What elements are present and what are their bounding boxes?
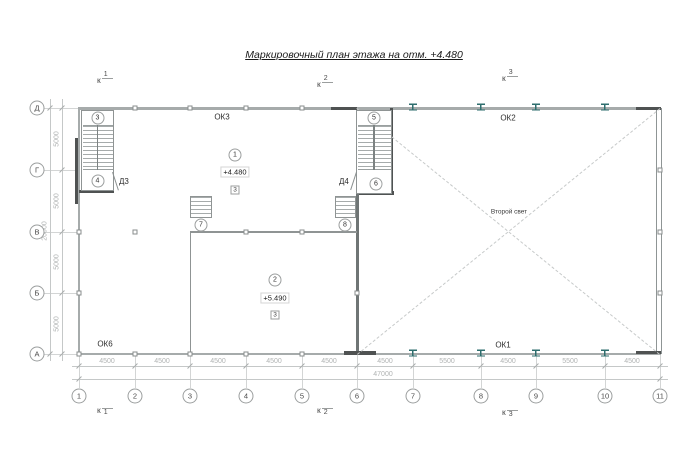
grid-leader-col [357,354,358,388]
section-marker-letter: к [317,405,321,415]
column-marker [244,352,249,357]
dim-label-4500: 4500 [624,358,640,365]
column-marker [657,168,662,173]
opening-label-ok1: ОК1 [495,341,510,350]
dim-label-5500: 5500 [439,358,455,365]
door-label-d3: Д3 [119,177,129,186]
zone-type-box: 3 [271,311,280,320]
dim-label-4500: 4500 [266,358,282,365]
grid-leader-col [79,354,80,388]
section-marker-k1-top: к 1 [97,72,113,85]
wall-room2-top [190,231,357,233]
axis-bubble-col: 7 [406,389,421,404]
position-bubble: 4 [91,175,104,188]
grid-leader-col [660,354,661,388]
column-marker [300,106,305,111]
axis-bubble-col: 6 [350,389,365,404]
grid-leader-col [135,354,136,388]
grid-leader-col [605,354,606,388]
zone-number-bubble: 1 [229,149,242,162]
steel-column-icon [477,350,485,357]
axis-bubble-col: 9 [529,389,544,404]
column-marker [355,291,360,296]
opening-label-ok3: ОК3 [214,113,229,122]
stair-divider [97,125,99,170]
section-marker-letter: к [502,407,506,417]
section-marker-k1-bottom: к 1 [97,402,113,415]
zone-number-bubble: 2 [269,274,282,287]
grid-leader-col [190,354,191,388]
steel-column-icon [409,350,417,357]
section-marker-k3-top: к 3 [502,70,518,83]
stair-divider [373,125,375,170]
stair-small-7 [190,196,212,218]
dim-label-4500: 4500 [321,358,337,365]
axis-bubble-col: 4 [239,389,254,404]
steel-column-icon [532,350,540,357]
section-marker-number: 3 [507,69,518,77]
dimension-line-bottom-total [72,379,668,380]
dim-label-4500: 4500 [154,358,170,365]
grid-leader-col [536,354,537,388]
column-marker [657,230,662,235]
zone-type-box: 3 [231,185,240,194]
grid-leader-col [246,354,247,388]
section-marker-k2-top: к 2 [317,76,333,89]
column-marker [657,291,662,296]
section-marker-letter: к [317,79,321,89]
section-marker-number: 2 [322,75,333,83]
wall-room2-left [190,232,192,354]
void-label: Второй свет [491,209,527,216]
floor-plan-drawing: Маркировочный план этажа на отм. +4.480 … [0,0,700,474]
opening-label-ok2: ОК2 [500,114,515,123]
axis-bubble-col: 10 [598,389,613,404]
column-marker [188,106,193,111]
section-marker-letter: к [97,405,101,415]
axis-bubble-col: 5 [295,389,310,404]
elevation-mark: +5.490 [260,293,289,304]
drawing-title: Маркировочный план этажа на отм. +4.480 [245,49,463,61]
wall-segment-dark [331,107,357,111]
grid-leader-col [481,354,482,388]
section-marker-letter: к [97,75,101,85]
section-marker-k2-bottom: к 2 [317,402,333,415]
wall-interior-mid [356,194,359,354]
column-marker [300,230,305,235]
section-marker-number: 2 [322,408,333,416]
dim-label-4500: 4500 [99,358,115,365]
dim-label-4500: 4500 [210,358,226,365]
column-marker [77,291,82,296]
axis-bubble-col: 1 [72,389,87,404]
axis-bubble-col: 3 [183,389,198,404]
dim-label-5000: 5000 [54,131,61,147]
position-bubble: 3 [91,111,104,124]
dim-label-5000: 5000 [54,316,61,332]
dimension-line-left-total [50,99,51,361]
axis-bubble-row: В [30,225,45,240]
axis-bubble-row: Б [30,286,45,301]
column-marker [244,230,249,235]
section-marker-number: 1 [102,71,113,79]
dim-label-4500: 4500 [377,358,393,365]
section-marker-number: 1 [102,408,113,416]
column-marker [133,106,138,111]
column-marker [300,352,305,357]
position-bubble: 5 [368,111,381,124]
axis-bubble-row: Г [30,163,45,178]
column-marker [77,352,82,357]
wall-segment-dark [75,138,78,204]
position-bubble: 6 [370,178,383,191]
column-marker [133,230,138,235]
position-bubble: 8 [339,219,352,232]
steel-column-icon [409,104,417,111]
section-marker-k3-bottom: к 3 [502,404,518,417]
column-marker [244,106,249,111]
elevation-mark: +4.480 [220,167,249,178]
steel-column-icon [601,104,609,111]
dimension-line-bottom [72,366,668,367]
grid-leader-col [413,354,414,388]
stair-small-8 [335,196,357,218]
steel-column-icon [477,104,485,111]
dim-label-4500: 4500 [500,358,516,365]
column-marker [77,230,82,235]
axis-bubble-col: 8 [474,389,489,404]
dim-label-47000: 47000 [373,371,392,378]
steel-column-icon [601,350,609,357]
axis-bubble-row: Д [30,101,45,116]
position-bubble: 7 [195,219,208,232]
section-marker-number: 3 [507,410,518,418]
dim-label-5000: 5000 [54,193,61,209]
steel-column-icon [532,104,540,111]
section-marker-letter: к [502,73,506,83]
axis-bubble-col: 2 [128,389,143,404]
grid-leader-col [302,354,303,388]
dim-label-5000: 5000 [54,254,61,270]
column-marker [188,352,193,357]
door-label-d4: Д4 [339,177,349,186]
axis-bubble-col: 11 [653,389,668,404]
dim-label-5500: 5500 [562,358,578,365]
opening-label-ok6: ОК6 [97,340,112,349]
axis-bubble-row: А [30,347,45,362]
column-marker [133,352,138,357]
